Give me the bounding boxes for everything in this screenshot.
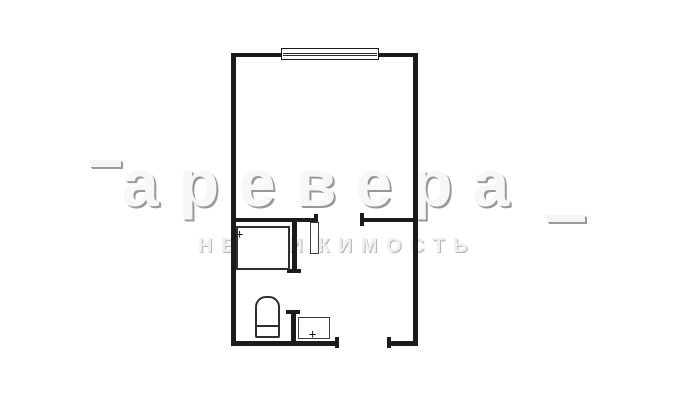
room-door-leaf	[310, 222, 319, 254]
watermark-brand-text: аревера	[122, 150, 529, 216]
wall-top-right	[378, 53, 418, 57]
shower-plus-marker: +	[236, 229, 243, 239]
interior-wall-right-segment	[361, 218, 413, 222]
interior-wall-left-segment	[236, 218, 318, 222]
entry-door-jamb-left	[335, 337, 339, 348]
entry-door-jamb-right	[387, 337, 391, 348]
wall-bottom-right	[387, 341, 418, 346]
toilet	[255, 296, 280, 338]
watermark-overbar-mark	[90, 160, 121, 167]
wall-top-left	[231, 53, 283, 57]
wall-bottom-left	[231, 341, 338, 346]
bathroom-wall-upper	[292, 222, 297, 270]
shower-cabin	[236, 226, 290, 270]
wall-right	[413, 53, 418, 346]
watermark-underscore-mark	[547, 215, 585, 222]
window-glazing-line	[283, 53, 377, 56]
toilet-tank	[257, 325, 278, 336]
window	[281, 48, 379, 60]
bathroom-wall-lower	[291, 313, 296, 341]
wall-left	[231, 53, 236, 346]
sink-plus-marker: +	[309, 329, 316, 339]
floorplan-image: аревера НЕДВИЖИМОСТЬ + +	[0, 0, 680, 404]
